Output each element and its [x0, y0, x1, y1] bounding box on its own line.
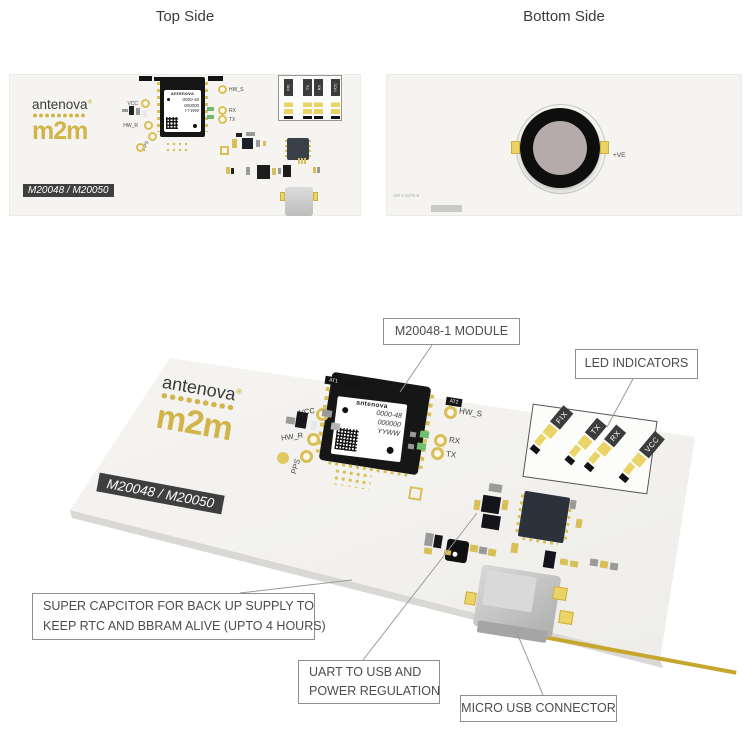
led-fix-label: FIX [284, 79, 293, 96]
hwr-label: HW_R [116, 123, 138, 129]
model-label: M20048 / M20050 [23, 184, 114, 197]
smd-component [263, 141, 266, 146]
smd-component [122, 109, 128, 112]
smd-component [313, 167, 316, 173]
uart-callout: UART TO USB AND POWER REGULATION [298, 660, 440, 704]
hws-label: HW_S [229, 87, 243, 93]
module-line3: YYWW [182, 108, 199, 114]
smd-component [481, 495, 501, 515]
led-indicator-block: FIX TX RX VCC [278, 75, 342, 121]
pps-testpoint [148, 132, 157, 141]
usb-pad-3d [464, 591, 477, 606]
smd-component [136, 108, 140, 115]
smd-component [272, 168, 276, 175]
open-pad-3d [277, 452, 289, 464]
smd-component [417, 442, 427, 450]
smd-component [610, 562, 619, 570]
rx-label: RX [229, 108, 236, 114]
usb-pad-3d [552, 586, 568, 601]
fiducial-dot [386, 446, 394, 454]
smd-component [424, 547, 433, 554]
smd-component [257, 165, 270, 179]
qr-code [334, 427, 359, 452]
smd-component [143, 111, 147, 117]
module-sticker: antenova 0000-48 000000 YYWW [331, 396, 408, 462]
led-pad [331, 109, 340, 114]
led-vcc: VCC [331, 79, 340, 119]
hws-testpoint [218, 85, 227, 94]
module-pins [157, 82, 160, 132]
usb-uart-ic [287, 138, 309, 160]
datasheet-figure-page: Top Side Bottom Side antenova® m2m M2004… [0, 0, 749, 736]
pin1-dot [452, 551, 458, 557]
brand-text: antenova® [32, 98, 104, 112]
vcc-label: VCC [118, 101, 138, 107]
smd-component [479, 546, 488, 554]
ic-pins [309, 140, 311, 159]
smd-component [481, 514, 501, 531]
doc-ref: AM 1-3475-6 [393, 193, 419, 198]
led-tx: TX [303, 79, 312, 119]
led-tx-label: TX [303, 79, 312, 96]
supercap-callout-line1: SUPER CAPCITOR FOR BACK UP SUPPLY TO [43, 597, 314, 616]
smd-component [410, 432, 417, 438]
smd-component [488, 548, 497, 556]
smd-component [444, 549, 452, 555]
plus-ve-label: +VE [613, 152, 625, 159]
led-pad [331, 116, 340, 119]
uart-callout-line2: POWER REGULATION [309, 682, 439, 701]
brand-name: antenova [32, 97, 88, 112]
module-part-numbers: 0000-48 000000 YYWW [182, 97, 199, 114]
ic-pins [285, 140, 287, 159]
smd-component [256, 140, 260, 147]
led-pad [284, 99, 293, 107]
usb-callout: MICRO USB CONNECTOR [460, 695, 617, 722]
led-pad [303, 116, 312, 119]
hws-testpoint-3d [444, 406, 457, 419]
bottom-side-board-image: +VE AM 1-3475-6 [387, 75, 741, 215]
hwr-testpoint [144, 121, 153, 130]
led-pad [314, 109, 323, 114]
component-bar [154, 77, 162, 81]
capacitor-pad [511, 141, 520, 154]
smd-component [331, 422, 341, 430]
top-side-board-image: antenova® m2m M20048 / M20050 antenova 0… [10, 75, 360, 215]
hwr-testpoint-3d [307, 433, 320, 446]
micro-usb-flat [285, 187, 313, 216]
led-vcc-label: VCC [331, 79, 340, 96]
top-side-title: Top Side [10, 8, 360, 25]
smd-component [317, 167, 320, 173]
pad-grid [165, 141, 189, 154]
usb-pad [280, 192, 285, 201]
at2-marker [208, 76, 223, 81]
module-callout-text: M20048-1 MODULE [395, 322, 508, 341]
square-pad-3d [408, 486, 423, 501]
fiducial-dot [193, 124, 197, 128]
usb-pad [313, 192, 318, 201]
module-callout: M20048-1 MODULE [383, 318, 520, 345]
smd-component [246, 132, 255, 136]
led-callout: LED INDICATORS [575, 349, 698, 379]
rx-testpoint [218, 106, 227, 115]
module-sticker: antenova 0000-48 000000 YYWW [164, 90, 201, 132]
led-pad [284, 116, 293, 119]
smd-component [207, 115, 214, 119]
smd-component [590, 558, 599, 566]
at1-marker [139, 76, 152, 81]
smd-component [207, 107, 214, 111]
qr-code [166, 117, 178, 129]
smd-component [304, 158, 306, 164]
led-pad [314, 99, 323, 107]
tx-testpoint-3d [431, 447, 444, 460]
vcc-testpoint [141, 99, 150, 108]
module-part-numbers: 0000-48 000000 YYWW [374, 410, 403, 439]
smd-component [283, 165, 291, 177]
usb-uart-ic-3d [518, 491, 571, 544]
capacitor-pad [600, 141, 609, 154]
smd-component [129, 106, 134, 115]
antenova-m2m-logo: antenova® m2m [32, 98, 104, 144]
registered-mark: ® [235, 387, 242, 397]
rx-testpoint-3d [434, 434, 447, 447]
smd-component [301, 158, 303, 164]
bottom-side-title: Bottom Side [387, 8, 741, 25]
smd-component [560, 558, 569, 565]
fiducial-dot [342, 407, 349, 414]
smd-component [298, 158, 300, 164]
smd-component [232, 139, 237, 148]
registered-mark: ® [88, 100, 92, 106]
open-pad [136, 143, 145, 152]
rx-label-3d: RX [448, 435, 460, 445]
square-pad [220, 146, 229, 155]
smd-component [226, 167, 230, 174]
smd-component [420, 430, 430, 438]
module-brand: antenova [164, 91, 201, 96]
smd-component [242, 138, 253, 149]
usb-callout-text: MICRO USB CONNECTOR [461, 699, 616, 718]
micro-usb-3d [473, 564, 562, 638]
led-pad [331, 99, 340, 107]
smd-component [408, 444, 415, 450]
led-callout-text: LED INDICATORS [585, 354, 689, 373]
smd-component [570, 560, 579, 567]
smd-component [470, 544, 479, 552]
led-pad [284, 109, 293, 114]
led-fix-3d: FIX [528, 405, 573, 456]
fiducial-dot [167, 98, 170, 101]
led-pad [303, 99, 312, 107]
usb-shadow [431, 205, 462, 212]
smd-component [231, 168, 234, 174]
supercap-callout-line2: KEEP RTC AND BBRAM ALIVE (UPTO 4 HOURS) [43, 617, 314, 636]
supercap-callout: SUPER CAPCITOR FOR BACK UP SUPPLY TO KEE… [32, 593, 315, 640]
tx-testpoint [218, 115, 227, 124]
smd-component [246, 167, 250, 175]
usb-pad-3d [558, 610, 574, 625]
usb-front-lip [476, 620, 547, 643]
gnss-module: antenova 0000-48 000000 YYWW [160, 77, 205, 137]
usb-top-face [482, 570, 537, 613]
smd-component [600, 560, 609, 568]
brand-m2m: m2m [32, 119, 104, 144]
smd-component [286, 416, 296, 424]
super-capacitor-top [533, 121, 587, 175]
led-pad [314, 116, 323, 119]
smd-component [278, 168, 281, 174]
led-rx: RX [314, 79, 323, 119]
tx-label-3d: TX [445, 449, 456, 459]
module-line1: 0000-48 [182, 97, 199, 103]
led-fix: FIX [284, 79, 293, 119]
tx-label: TX [229, 117, 235, 123]
smd-component [322, 409, 333, 417]
uart-callout-line1: UART TO USB AND [309, 663, 439, 682]
led-pad [303, 109, 312, 114]
smd-component [236, 133, 242, 137]
led-rx-label: RX [314, 79, 323, 96]
